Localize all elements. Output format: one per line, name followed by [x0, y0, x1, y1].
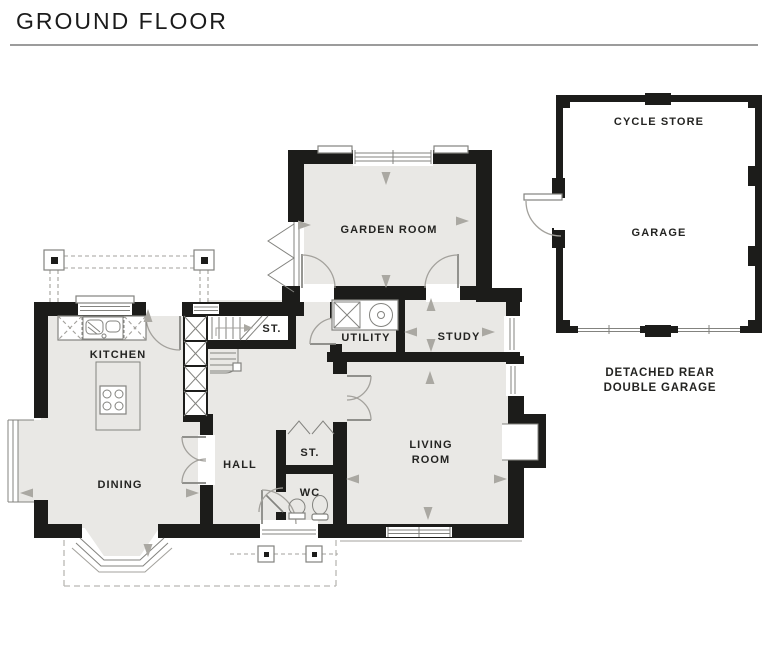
room-label-study: STUDY: [438, 331, 481, 343]
garage-caption-2: DOUBLE GARAGE: [604, 382, 717, 394]
garage-building: [524, 93, 762, 337]
room-label-living-1: LIVING: [409, 439, 452, 451]
utility-counter: [332, 300, 398, 330]
stair-newel: [233, 363, 241, 371]
floor-plan-canvas: GARDEN ROOM KITCHEN DINING HALL ST. UTIL…: [0, 0, 768, 660]
room-label-cycle-store: CYCLE STORE: [614, 116, 704, 128]
room-label-hall: HALL: [223, 459, 257, 471]
kitchen-island: [96, 362, 140, 430]
room-label-hall-store: ST.: [300, 447, 319, 459]
room-label-wc: WC: [300, 487, 321, 499]
room-label-kitchen: KITCHEN: [90, 349, 147, 361]
fireplace: [502, 414, 546, 468]
garage-caption-1: DETACHED REAR: [605, 367, 714, 379]
utility-fixtures: [332, 300, 398, 330]
hob: [100, 386, 126, 414]
room-label-utility: UTILITY: [341, 332, 390, 344]
pergola-outline: [44, 250, 214, 302]
room-label-living-2: ROOM: [412, 454, 451, 466]
garage-side-door: [524, 194, 562, 200]
room-label-dining: DINING: [97, 479, 142, 491]
room-label-garden-room: GARDEN ROOM: [340, 224, 437, 236]
tall-units: [184, 316, 207, 416]
room-label-stair-store: ST.: [262, 323, 281, 335]
room-label-garage: GARAGE: [632, 227, 687, 239]
